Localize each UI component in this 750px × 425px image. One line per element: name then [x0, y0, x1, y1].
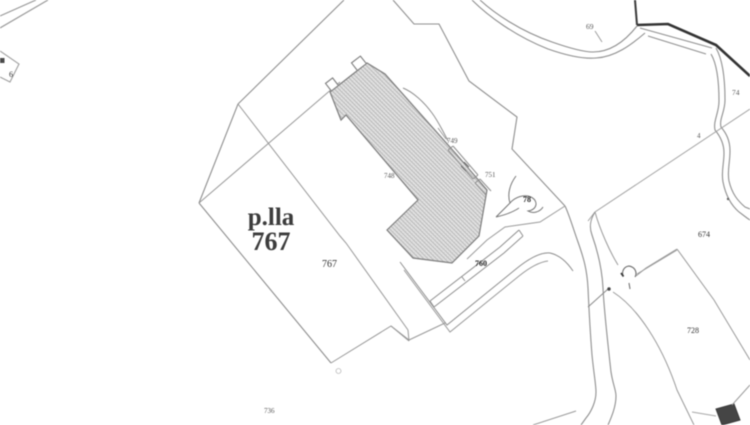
svg-text:760: 760	[475, 259, 487, 268]
svg-text:74: 74	[732, 88, 740, 97]
svg-text:69: 69	[586, 22, 594, 31]
svg-text:728: 728	[687, 326, 699, 335]
svg-text:4: 4	[697, 132, 701, 140]
svg-text:674: 674	[698, 230, 710, 239]
svg-text:78: 78	[523, 195, 531, 204]
svg-text:749: 749	[447, 137, 458, 145]
svg-text:6: 6	[9, 70, 13, 79]
svg-text:748: 748	[384, 172, 395, 180]
svg-text:751: 751	[485, 171, 496, 179]
svg-text:767: 767	[322, 259, 337, 270]
svg-text:767: 767	[252, 227, 291, 256]
svg-text:736: 736	[264, 407, 275, 415]
